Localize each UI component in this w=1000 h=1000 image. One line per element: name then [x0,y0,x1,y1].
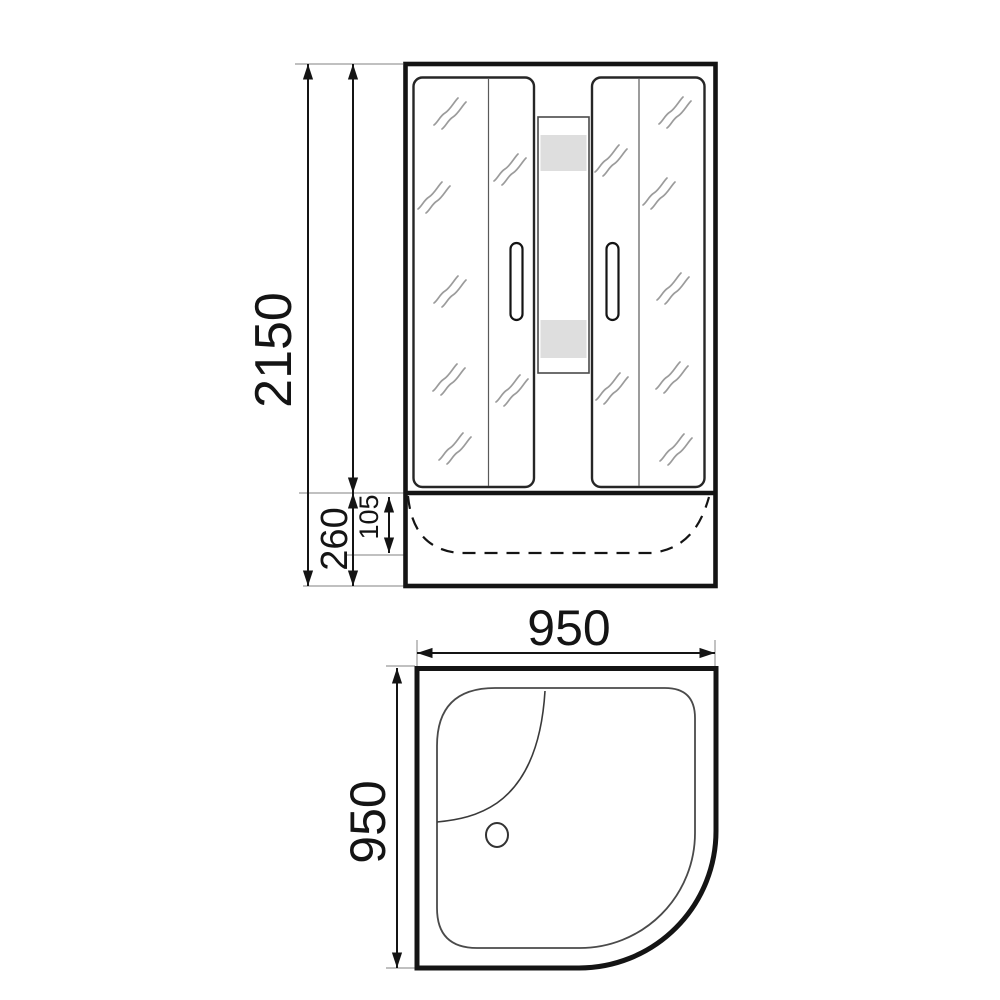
right-door-handle [607,243,619,320]
technical-drawing: 2150 260 105 950 950 [0,0,1000,1000]
total-height-label: 2150 [245,292,303,408]
left-door-handle [511,243,523,320]
tray-inner-depth-label: 105 [354,494,384,539]
central-column-shade-bottom [541,320,587,358]
plan-depth-label: 950 [340,780,396,863]
drawing-sheet: 2150 260 105 950 950 [0,0,1000,1000]
central-column-shade-top [541,135,587,171]
plan-width-label: 950 [527,600,610,656]
front-view: 2150 260 105 [245,64,716,586]
tray-inner-profile-dashed [408,496,709,553]
tray-height-label: 260 [314,507,356,570]
plan-view: 950 950 [340,600,716,968]
drain-circle [486,823,508,847]
